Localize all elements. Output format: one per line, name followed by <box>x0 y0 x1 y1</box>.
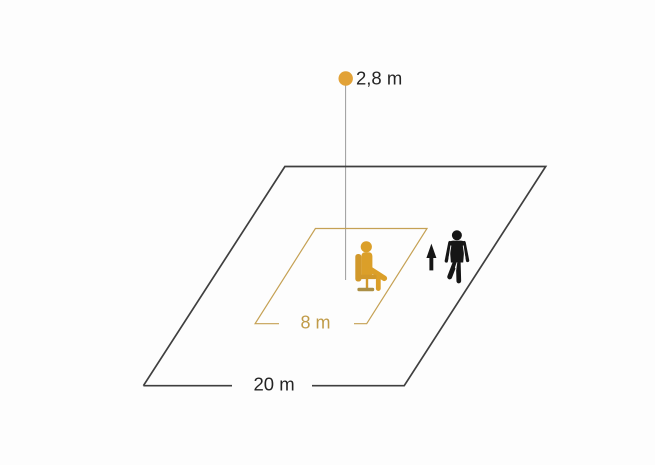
svg-text:2,8 m: 2,8 m <box>356 68 402 89</box>
svg-text:8 m: 8 m <box>301 313 331 333</box>
svg-text:20 m: 20 m <box>254 374 295 395</box>
